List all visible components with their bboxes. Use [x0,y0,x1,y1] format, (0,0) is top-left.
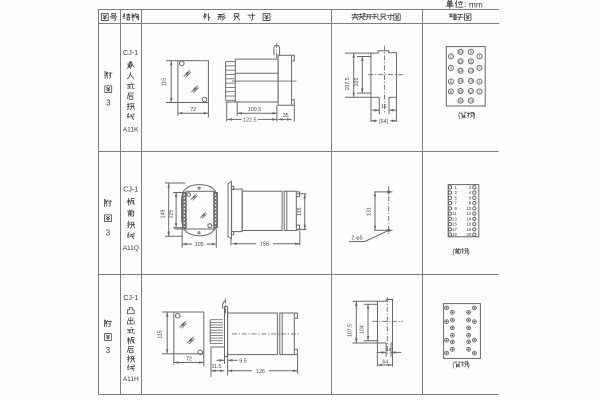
svg-text:72: 72 [190,107,196,113]
svg-text:A11K: A11K [123,126,139,133]
svg-text:100.5: 100.5 [248,107,262,113]
svg-text:16: 16 [459,79,463,83]
svg-text:14: 14 [459,69,463,73]
svg-text:13: 13 [452,216,457,221]
svg-text:16: 16 [467,222,472,227]
svg-text:16: 16 [381,104,387,110]
svg-text:72: 72 [186,356,192,362]
svg-text:5: 5 [479,80,481,84]
svg-text:19: 19 [452,232,457,237]
svg-text:107.5: 107.5 [348,324,354,337]
svg-text:115: 115 [162,78,168,87]
svg-text:125: 125 [169,210,175,219]
svg-text:9: 9 [470,50,472,54]
svg-text:20: 20 [467,232,472,237]
svg-text:17: 17 [469,89,473,93]
svg-text:1: 1 [479,55,481,59]
svg-text:3: 3 [106,346,111,355]
svg-text:105: 105 [195,242,204,248]
svg-text:64: 64 [382,360,388,366]
svg-text:CJ-1: CJ-1 [123,293,138,302]
svg-text:115: 115 [297,207,303,215]
svg-text:A11H: A11H [123,376,139,383]
svg-text:8: 8 [450,90,452,94]
svg-text:131: 131 [367,207,373,216]
svg-text:11: 11 [469,60,473,64]
svg-text:11.5: 11.5 [211,364,221,370]
svg-text:9.5: 9.5 [239,358,247,364]
svg-text:149: 149 [160,210,166,219]
svg-text:104: 104 [360,325,366,334]
svg-text:156: 156 [260,242,269,248]
svg-text:17: 17 [452,227,457,232]
svg-text:6: 6 [450,80,452,84]
svg-text:CJ-1: CJ-1 [123,48,138,57]
svg-text:35: 35 [283,113,289,119]
svg-text:11: 11 [452,211,457,216]
svg-text:14: 14 [467,216,472,221]
svg-text:13: 13 [469,69,473,73]
svg-text:18: 18 [467,227,472,232]
svg-text:126: 126 [256,369,265,375]
svg-text:7: 7 [479,90,481,94]
svg-text:A11Q: A11Q [123,245,139,252]
svg-text:107.5: 107.5 [345,77,351,90]
svg-text::: : [464,0,466,9]
svg-text:105: 105 [354,78,360,87]
svg-text:2-φ5: 2-φ5 [351,236,362,242]
svg-text:3: 3 [106,228,111,237]
svg-text:15: 15 [469,79,473,83]
svg-text:2: 2 [450,55,452,59]
svg-text:CJ-1: CJ-1 [123,184,138,193]
svg-text:3: 3 [479,66,481,70]
svg-text:115: 115 [158,330,164,339]
svg-text:10: 10 [467,206,472,211]
svg-text:20: 20 [459,99,463,103]
svg-text:12: 12 [467,211,472,216]
svg-text:16: 16 [386,347,392,352]
svg-text:19: 19 [469,99,473,103]
svg-text:[64]: [64] [379,119,388,125]
svg-text:15: 15 [452,222,457,227]
svg-text:4: 4 [450,66,452,70]
svg-text:3: 3 [106,98,111,107]
svg-text:mm: mm [469,0,483,9]
svg-text:122.5: 122.5 [243,118,257,124]
svg-text:12: 12 [459,60,463,64]
svg-text:18: 18 [459,89,463,93]
svg-text:10: 10 [459,50,463,54]
